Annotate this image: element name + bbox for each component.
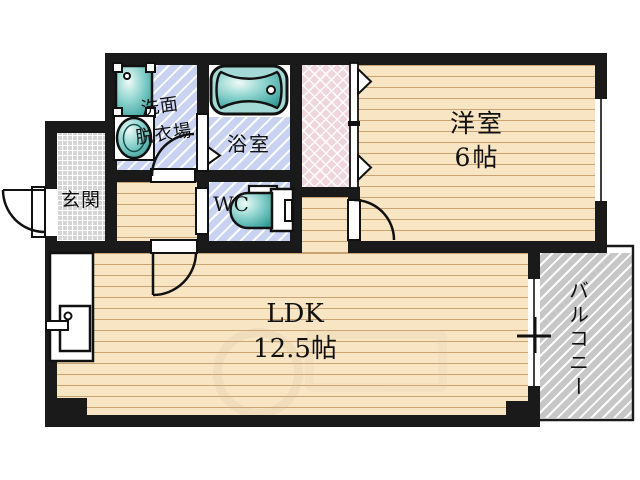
fixtures-layer <box>0 0 640 480</box>
western-room-size: 6帖 <box>358 141 596 175</box>
western-room-door <box>348 200 394 240</box>
western-room-label: 洋室 6帖 <box>358 107 596 175</box>
ldk-door-arc-icon <box>153 252 196 295</box>
wc-door-leaf <box>196 188 208 234</box>
balcony-label: バルコニー <box>555 261 599 419</box>
bathroom-label: 浴室 <box>207 131 291 158</box>
western-room-window <box>595 99 607 201</box>
closet-door-triangle-top-icon <box>358 69 371 94</box>
entrance-door <box>3 187 45 237</box>
ldk-label: LDK 12.5帖 <box>195 297 395 367</box>
ldk-door-leaf <box>151 240 197 253</box>
balcony-window <box>517 279 551 386</box>
kitchen-sink-icon <box>46 253 93 361</box>
floor-plan: 洗面 脱衣場 浴室 WC 玄関 洋室 6帖 LDK 12.5帖 バルコニー <box>0 0 640 480</box>
western-room-door-leaf <box>348 200 360 240</box>
washroom-door-leaf <box>151 169 195 182</box>
ldk-door <box>151 240 197 295</box>
ldk-name: LDK <box>195 297 395 332</box>
entrance-label: 玄関 <box>55 188 107 214</box>
toilet-label: WC <box>208 191 254 218</box>
ldk-size: 12.5帖 <box>195 332 395 367</box>
bathtub-icon <box>211 66 287 114</box>
western-room-name: 洋室 <box>358 107 596 141</box>
